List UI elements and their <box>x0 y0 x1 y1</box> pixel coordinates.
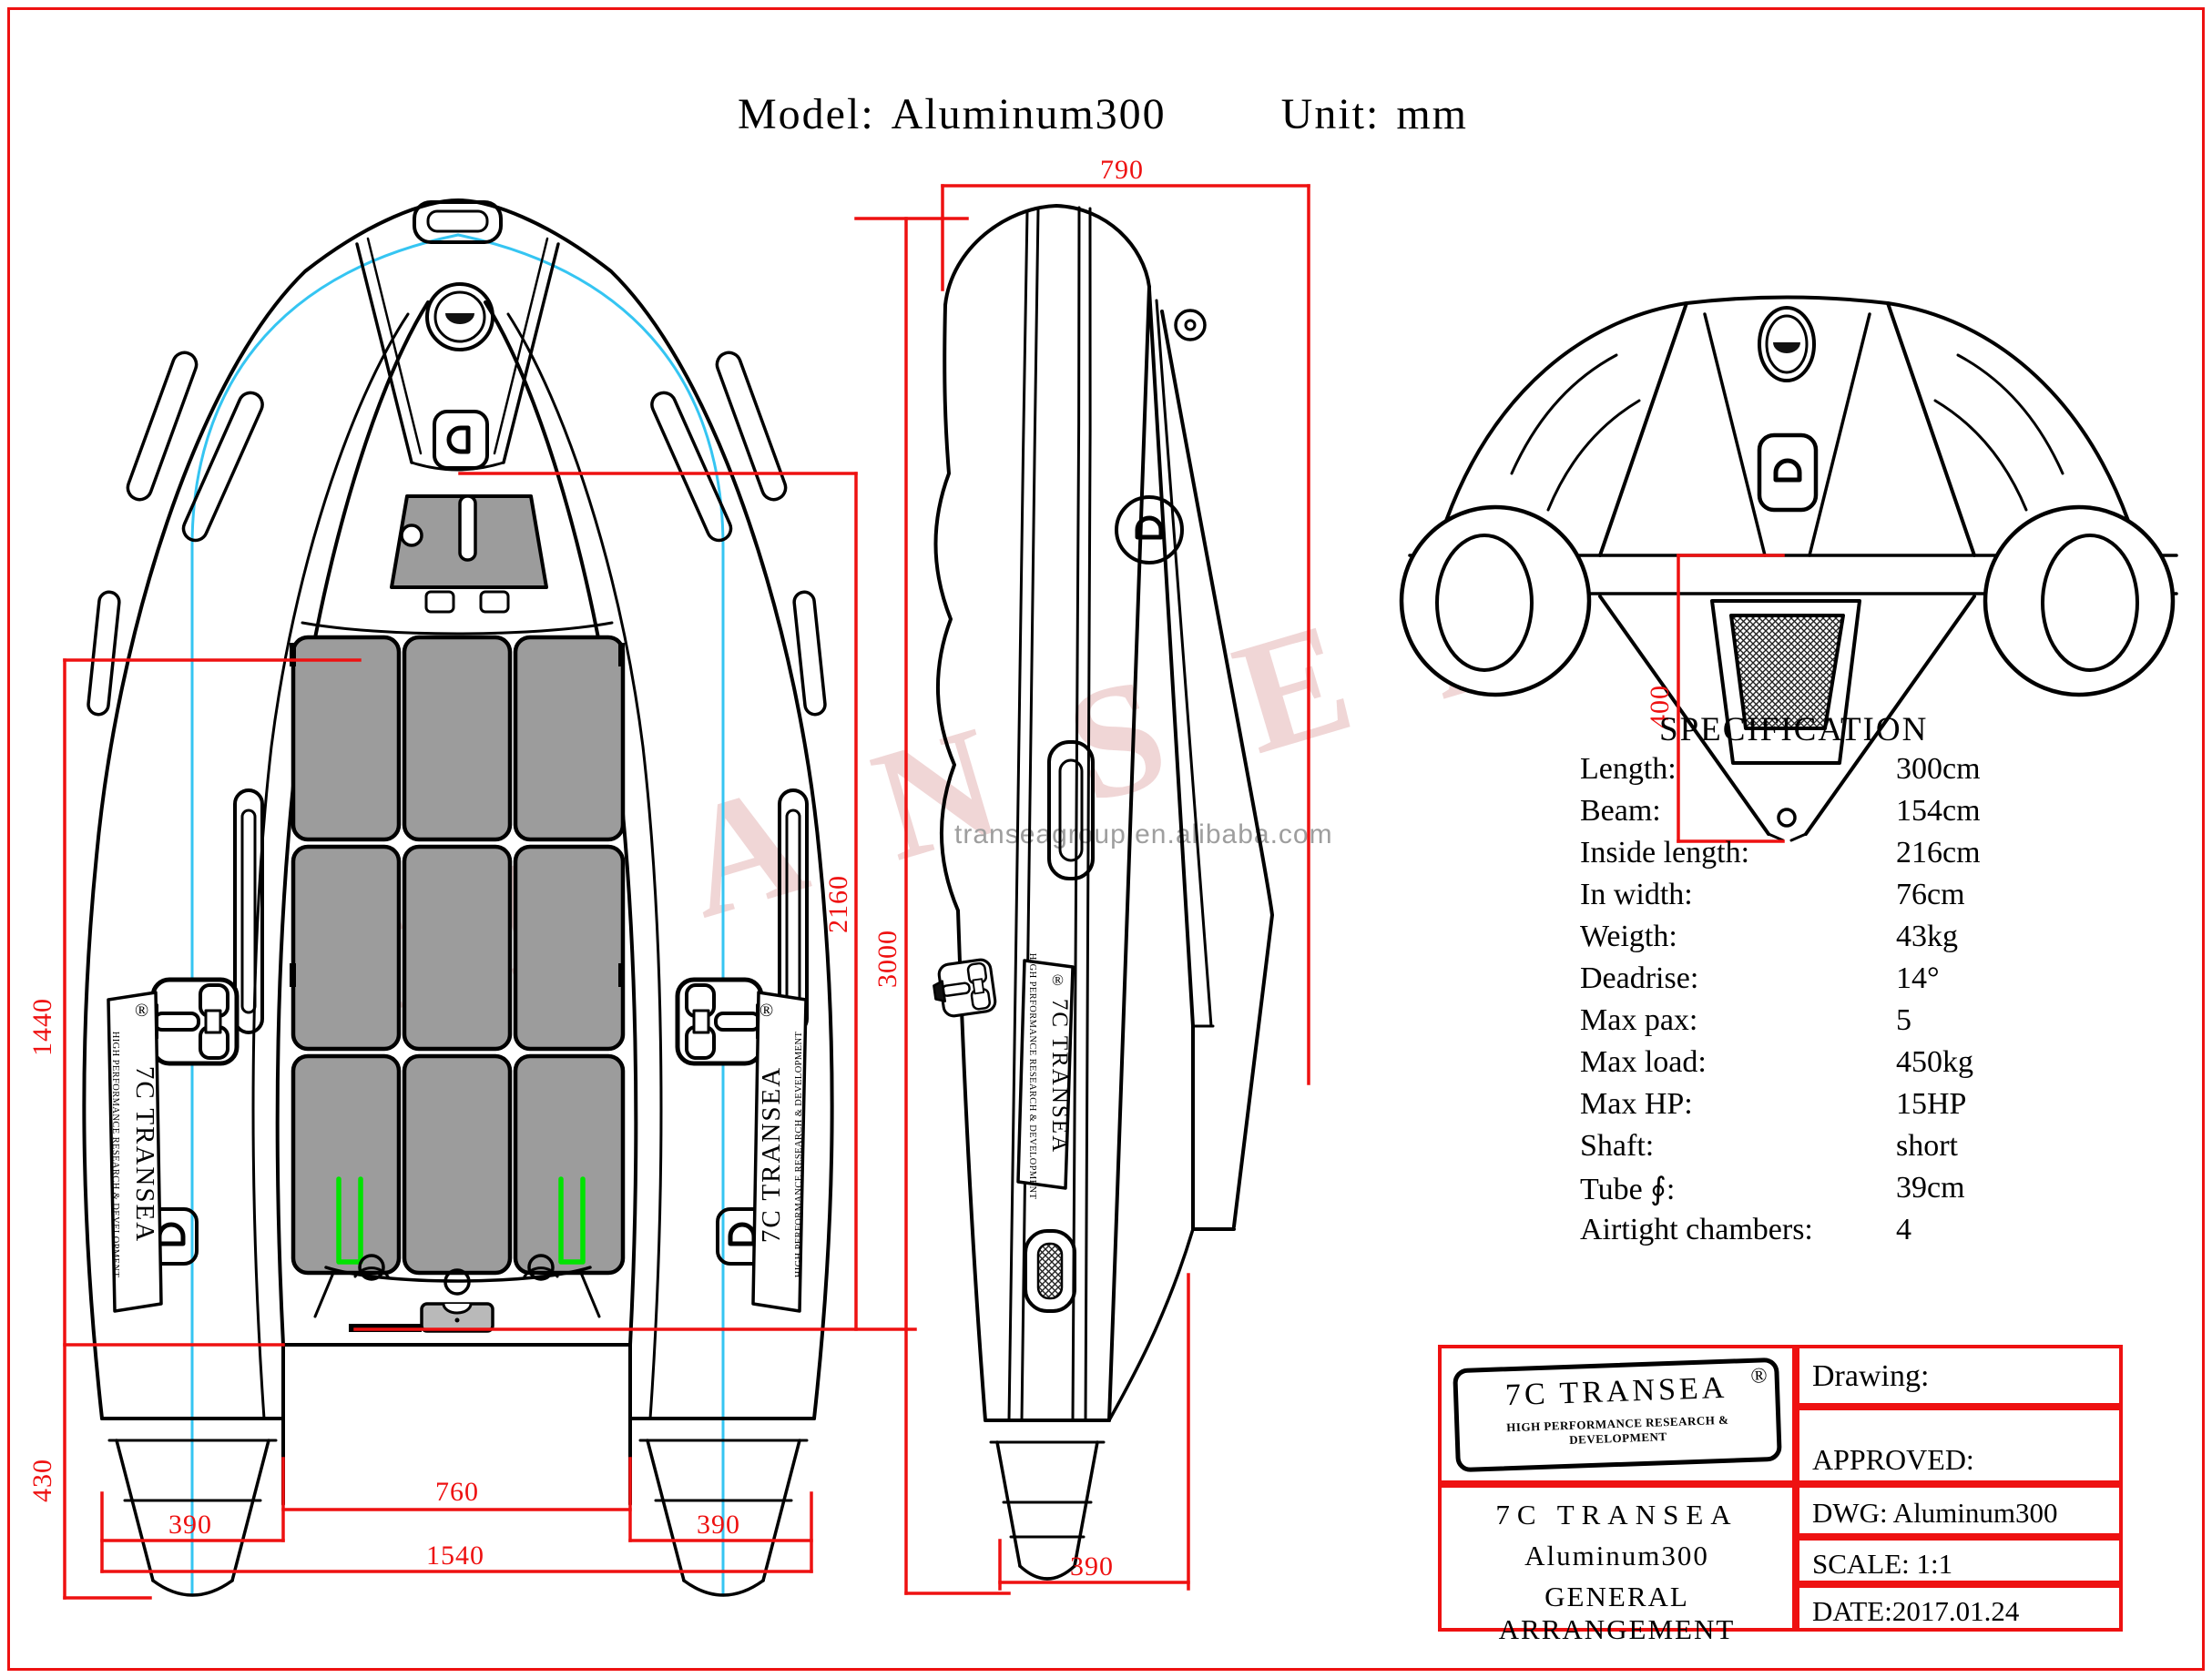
side-oarlock <box>931 959 996 1018</box>
spec-row: Inside length:216cm <box>1580 836 2190 878</box>
dim-3000: 3000 <box>872 930 902 988</box>
pontoon-branding-left: 7C TRANSEA HIGH PERFORMANCE RESEARCH & D… <box>108 992 161 1311</box>
transom-handle-icon <box>1759 308 1814 381</box>
spec-value: 15HP <box>1896 1087 1966 1122</box>
spec-label: Weigth: <box>1580 920 1677 953</box>
spec-value: 216cm <box>1896 836 1981 870</box>
spec-row: Length:300cm <box>1580 752 2190 794</box>
spec-value: 76cm <box>1896 878 1965 912</box>
spec-row: Shaft:short <box>1580 1129 2190 1171</box>
drawing-type: GENERAL ARRANGEMENT <box>1442 1581 1792 1646</box>
scale-value: SCALE: 1:1 <box>1799 1541 2119 1581</box>
spec-row: Weigth:43kg <box>1580 920 2190 961</box>
bow-dring-pad <box>434 412 487 468</box>
spec-label: Beam: <box>1580 794 1661 828</box>
dim-1540: 1540 <box>426 1541 484 1571</box>
stern-deck <box>283 1256 630 1504</box>
title-block: ® 7C TRANSEA HIGH PERFORMANCE RESEARCH &… <box>1438 1345 2123 1632</box>
svg-text:®: ® <box>1052 971 1064 989</box>
side-dring-icon <box>1116 497 1182 563</box>
spec-value: 43kg <box>1896 920 1958 954</box>
spec-row: Max load:450kg <box>1580 1045 2190 1087</box>
spec-value: 300cm <box>1896 752 1981 787</box>
bow-seat <box>392 496 546 612</box>
spec-table: Length:300cm Beam:154cm Inside length:21… <box>1580 752 2190 1255</box>
spec-title: SPECIFICATION <box>1659 710 1928 749</box>
spec-value: 154cm <box>1896 794 1981 829</box>
title-block-scale-row: SCALE: 1:1 <box>1796 1537 2123 1584</box>
svg-text:HIGH PERFORMANCE RESEARCH & DE: HIGH PERFORMANCE RESEARCH & DEVELOPMENT <box>1027 953 1037 1200</box>
dim-1440: 1440 <box>27 998 57 1056</box>
pontoon-branding-right: 7C TRANSEA HIGH PERFORMANCE RESEARCH & D… <box>753 992 806 1311</box>
spec-row: Airtight chambers:4 <box>1580 1213 2190 1255</box>
company-tagline: HIGH PERFORMANCE RESEARCH & DEVELOPMENT <box>1459 1411 1777 1451</box>
spec-label: Max HP: <box>1580 1087 1693 1121</box>
top-view-drawing: 7C TRANSEA HIGH PERFORMANCE RESEARCH & D… <box>84 200 831 1595</box>
svg-text:HIGH PERFORMANCE RESEARCH & DE: HIGH PERFORMANCE RESEARCH & DEVELOPMENT <box>794 1032 804 1278</box>
spec-label: Airtight chambers: <box>1580 1213 1813 1246</box>
dim-430: 430 <box>27 1459 57 1502</box>
spec-value: 450kg <box>1896 1045 1973 1080</box>
dim-390-right: 390 <box>697 1510 740 1540</box>
svg-text:7C TRANSEA: 7C TRANSEA <box>757 1066 786 1243</box>
spec-row: Tube ∮:39cm <box>1580 1171 2190 1213</box>
spec-value: short <box>1896 1129 1958 1164</box>
spec-label: Max load: <box>1580 1045 1707 1079</box>
svg-text:®: ® <box>135 1001 148 1021</box>
spec-label: Max pax: <box>1580 1003 1697 1037</box>
spec-label: Deadrise: <box>1580 961 1698 995</box>
title-block-date-row: DATE:2017.01.24 <box>1796 1584 2123 1632</box>
dwg-value: DWG: Aluminum300 <box>1799 1488 2119 1530</box>
dim-790: 790 <box>1100 155 1144 185</box>
spec-value: 39cm <box>1896 1171 1965 1205</box>
spec-value: 5 <box>1896 1003 1911 1038</box>
title-block-dwg-row: DWG: Aluminum300 <box>1796 1484 2123 1537</box>
company-name: 7C TRANSEA <box>1458 1369 1776 1415</box>
valve-icon <box>1025 1231 1075 1311</box>
svg-text:®: ® <box>759 1001 773 1021</box>
floor-panels <box>293 637 623 1273</box>
drawing-model: Aluminum300 <box>1442 1540 1792 1572</box>
transom-dring-pad <box>1759 435 1816 510</box>
date-value: DATE:2017.01.24 <box>1799 1588 2119 1628</box>
title-block-logo-cell: ® 7C TRANSEA HIGH PERFORMANCE RESEARCH &… <box>1438 1345 1796 1484</box>
dim-2160: 2160 <box>823 875 853 933</box>
registered-mark: ® <box>1750 1364 1768 1389</box>
dim-390-left: 390 <box>168 1510 212 1540</box>
svg-text:7C TRANSEA: 7C TRANSEA <box>1047 999 1072 1154</box>
title-block-drawing-row: Drawing: <box>1796 1345 2123 1407</box>
side-view-drawing: 7C TRANSEA HIGH PERFORMANCE RESEARCH & D… <box>931 206 1272 1579</box>
spec-value: 14° <box>1896 961 1940 996</box>
company-name: 7C TRANSEA <box>1442 1499 1792 1531</box>
spec-label: Shaft: <box>1580 1129 1654 1163</box>
company-logo: ® 7C TRANSEA HIGH PERFORMANCE RESEARCH &… <box>1453 1358 1782 1472</box>
spec-row: Max pax:5 <box>1580 1003 2190 1045</box>
drawing-label: Drawing: <box>1799 1348 2119 1394</box>
approved-label: APPROVED: <box>1799 1410 2119 1477</box>
title-block-name-cell: 7C TRANSEA Aluminum300 GENERAL ARRANGEME… <box>1438 1484 1796 1632</box>
bow-hatch-icon <box>427 284 493 350</box>
dim-760: 760 <box>435 1477 479 1507</box>
spec-label: Tube ∮: <box>1580 1173 1675 1206</box>
spec-value: 4 <box>1896 1213 1911 1247</box>
spec-label: In width: <box>1580 878 1693 911</box>
drawing-sheet: TRANSEA transeagroup.en.alibaba.com Mode… <box>0 0 2212 1678</box>
spec-row: Max HP:15HP <box>1580 1087 2190 1129</box>
title-block-approved-row: APPROVED: <box>1796 1407 2123 1484</box>
spec-label: Length: <box>1580 752 1677 786</box>
dim-390-side: 390 <box>1070 1551 1114 1581</box>
svg-text:HIGH PERFORMANCE RESEARCH & DE: HIGH PERFORMANCE RESEARCH & DEVELOPMENT <box>110 1032 120 1278</box>
spec-row: In width:76cm <box>1580 878 2190 920</box>
spec-row: Beam:154cm <box>1580 794 2190 836</box>
side-branding: 7C TRANSEA HIGH PERFORMANCE RESEARCH & D… <box>1018 953 1073 1200</box>
spec-row: Deadrise:14° <box>1580 961 2190 1003</box>
spec-label: Inside length: <box>1580 836 1749 870</box>
svg-text:7C TRANSEA: 7C TRANSEA <box>130 1066 159 1243</box>
